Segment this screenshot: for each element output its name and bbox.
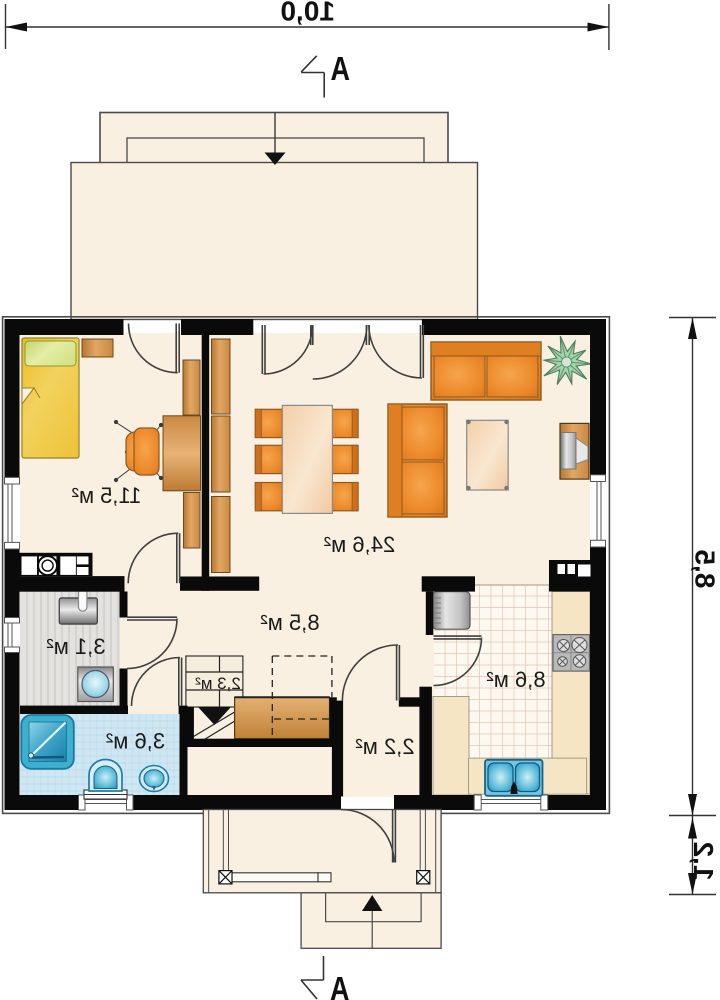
svg-text:8,6 м²: 8,6 м² <box>486 667 545 692</box>
svg-text:3,6 м²: 3,6 м² <box>106 729 165 754</box>
svg-text:8,5 м²: 8,5 м² <box>260 610 319 635</box>
svg-text:3,1 м²: 3,1 м² <box>46 634 105 659</box>
svg-text:1,2: 1,2 <box>688 842 719 881</box>
svg-text:2,2 м²: 2,2 м² <box>355 734 414 759</box>
svg-text:24,6 м²: 24,6 м² <box>324 532 395 557</box>
svg-text:8,5: 8,5 <box>690 550 720 589</box>
svg-text:A: A <box>331 50 351 87</box>
svg-text:11,5 м²: 11,5 м² <box>72 483 142 508</box>
svg-text:A: A <box>330 970 350 1000</box>
svg-text:2,3 м²: 2,3 м² <box>195 674 241 693</box>
svg-text:10,0: 10,0 <box>280 0 335 27</box>
